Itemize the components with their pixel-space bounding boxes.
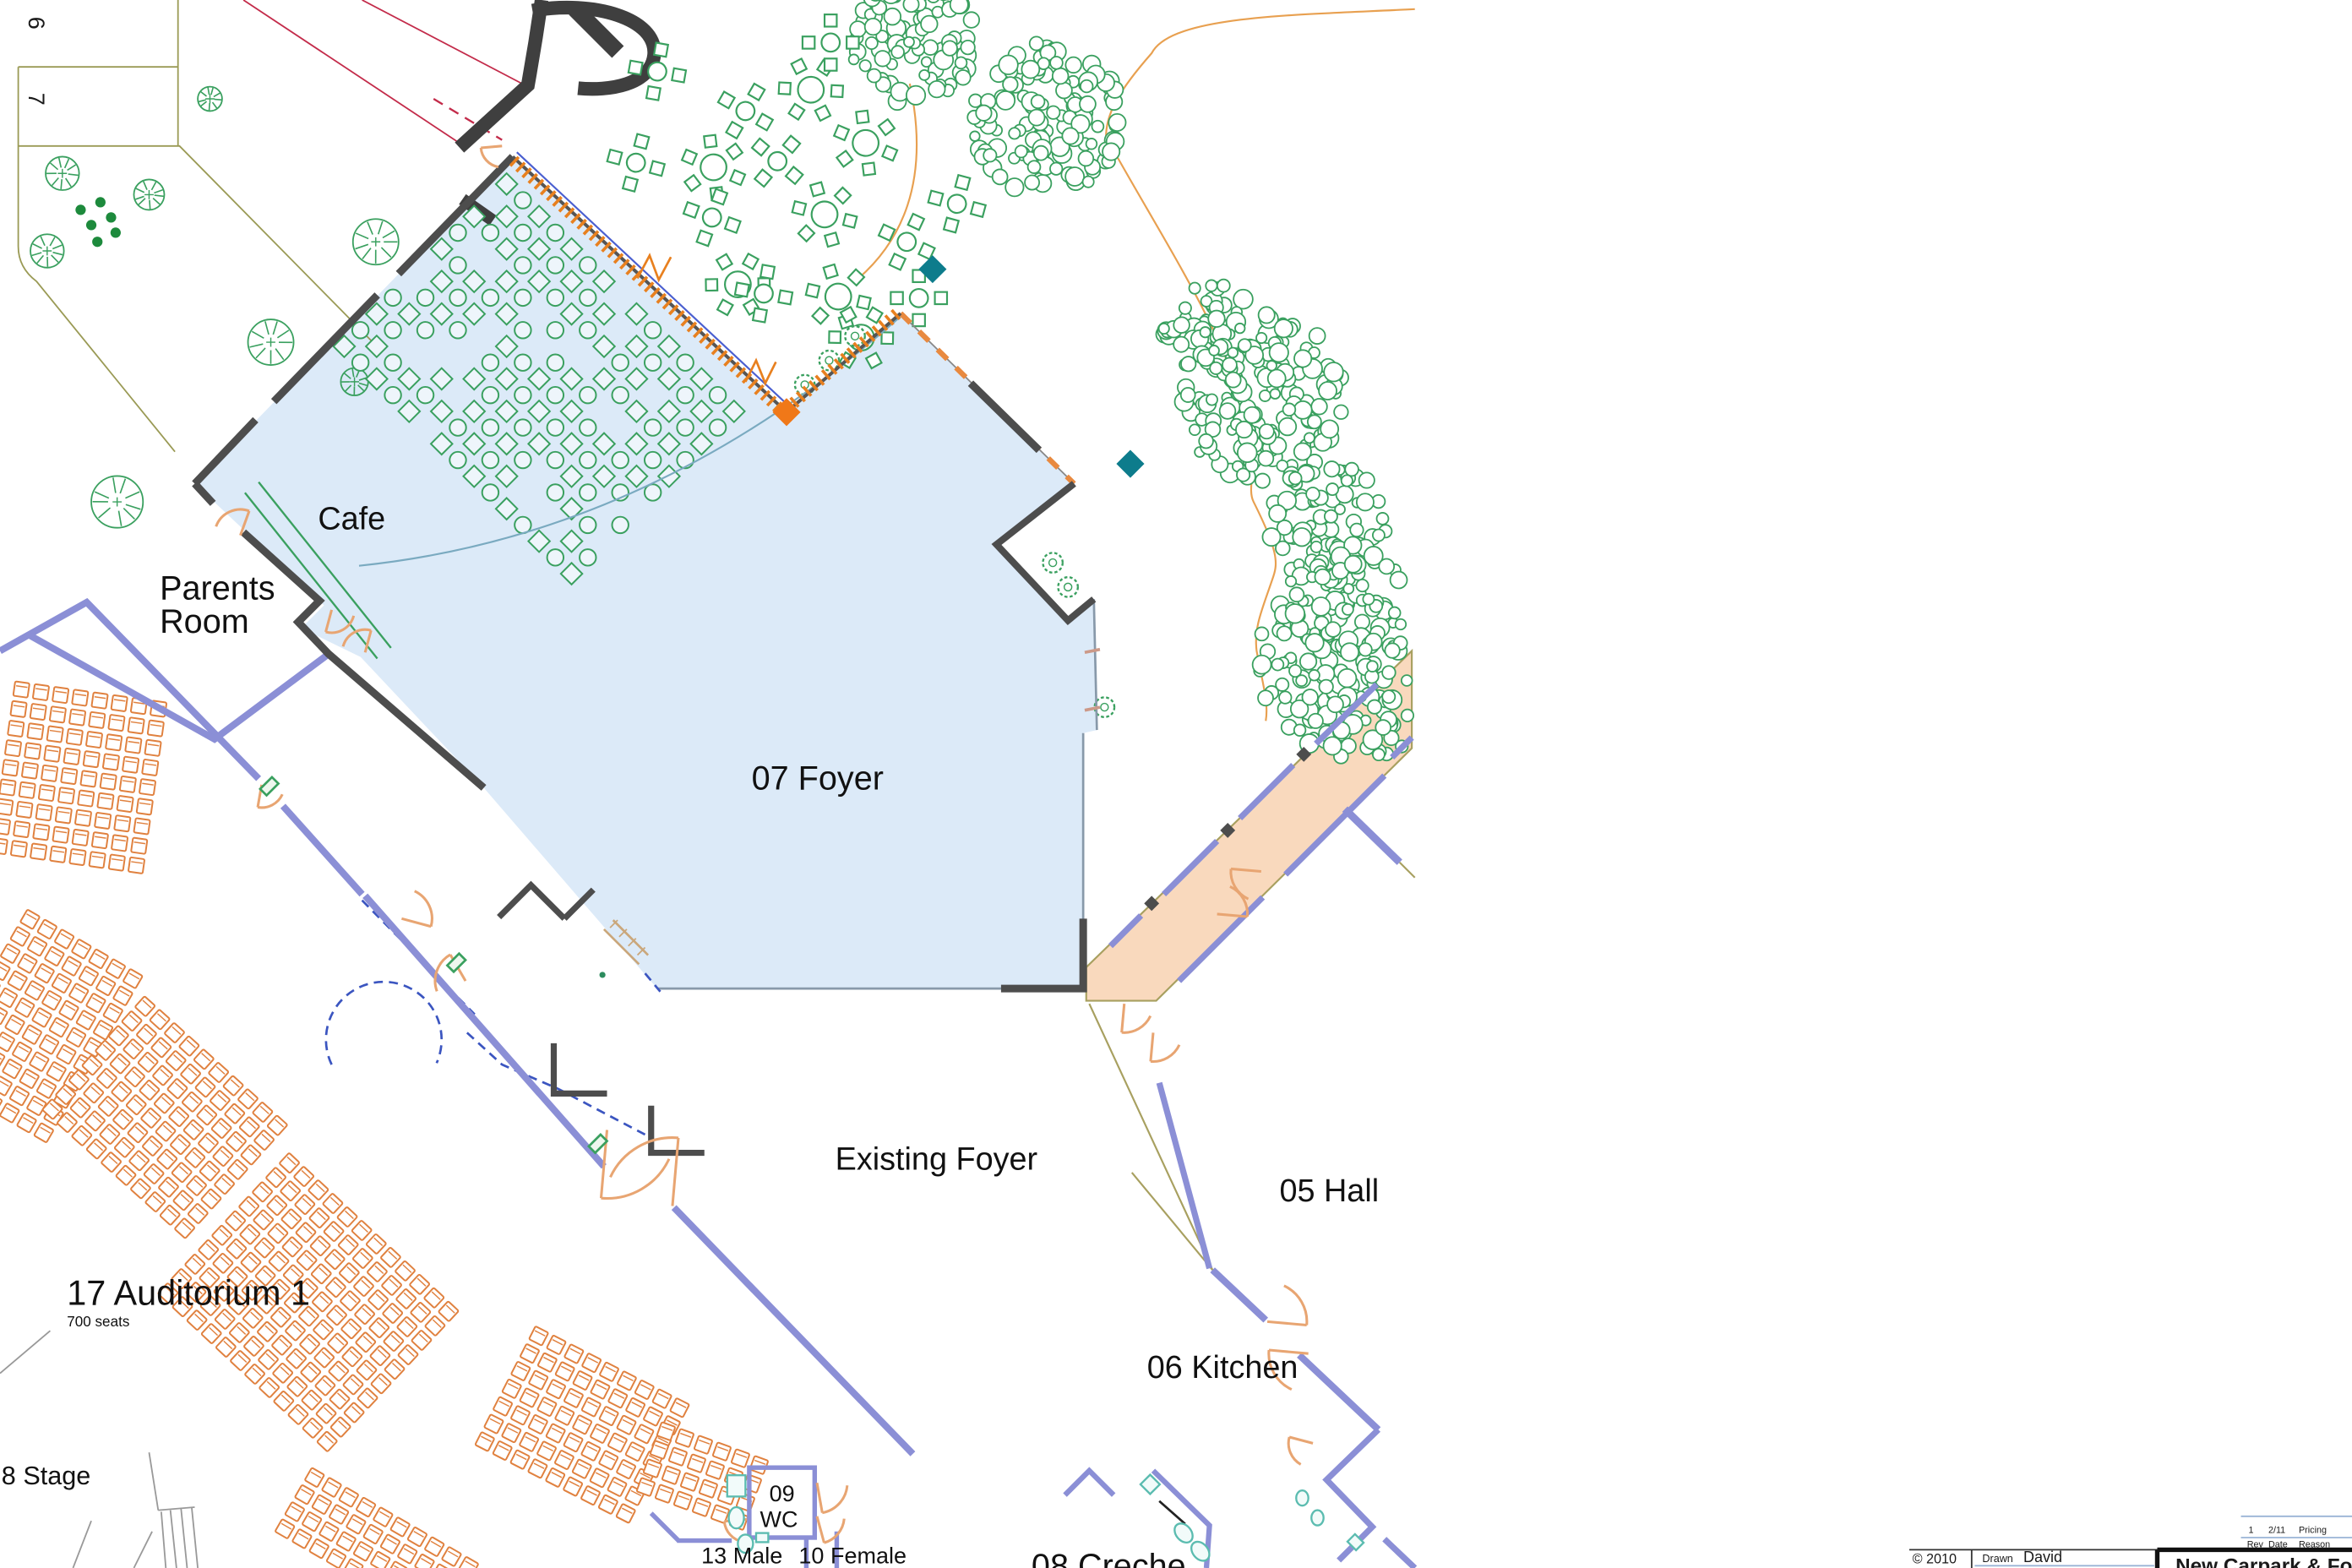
square-table <box>707 73 784 150</box>
room-label-female: 10 Female <box>798 1543 906 1568</box>
door-arc <box>1122 1016 1151 1033</box>
cafe-table-round <box>677 452 693 468</box>
cafe-table-round <box>580 290 596 306</box>
plot-number-6: 6 <box>24 17 49 30</box>
cafe-table-round <box>449 225 465 241</box>
square-table <box>624 39 689 104</box>
cafe-table-round <box>580 322 596 338</box>
cafe-table-round <box>514 290 531 306</box>
door-arc <box>610 1138 678 1178</box>
cafe-table-round <box>352 355 368 371</box>
cafe-table-round <box>514 257 531 273</box>
cafe-table-round <box>677 387 693 403</box>
square-table <box>738 122 817 201</box>
cafe-table-round <box>514 225 531 241</box>
tree <box>849 0 979 110</box>
square-table <box>602 128 671 198</box>
door-arc <box>824 1519 844 1543</box>
round-table <box>765 44 857 135</box>
cafe-table-round <box>580 517 596 533</box>
drawn-label: Drawn <box>1982 1553 2012 1565</box>
cafe-table-round <box>417 387 433 403</box>
cafe-table-round <box>449 452 465 468</box>
copyright-text: © 2010 <box>1913 1552 1957 1567</box>
cafe-table-round <box>710 419 726 435</box>
cafe-table-round <box>677 419 693 435</box>
tree <box>967 36 1125 196</box>
door-arc <box>822 1485 847 1512</box>
room-label-foyer: 07 Foyer <box>752 759 884 797</box>
room-label-parents-2: Room <box>160 603 249 640</box>
cafe-table-round <box>547 225 563 241</box>
bush <box>1043 553 1062 572</box>
cafe-table-round <box>449 257 465 273</box>
title-block: 1 2/11 Pricing Rev Date Reason © 2010 Da… <box>1909 1516 2352 1568</box>
shrub-dot <box>111 227 121 237</box>
revision-reason-value: Pricing <box>2299 1526 2327 1536</box>
cafe-table-round <box>482 419 498 435</box>
shrub-dot <box>92 237 102 247</box>
room-label-hall: 05 Hall <box>1279 1173 1379 1209</box>
tree <box>198 87 222 112</box>
plot-number-7: 7 <box>24 93 49 106</box>
room-label-male: 13 Male <box>701 1543 782 1568</box>
cafe-table-round <box>580 387 596 403</box>
room-label-cafe: Cafe <box>318 501 385 536</box>
cafe-table-round <box>482 452 498 468</box>
floor-plan-canvas: Cafe Parents Room 07 Foyer Existing Foye… <box>0 0 2352 1568</box>
revision-header-rev: Rev <box>2247 1540 2264 1550</box>
shrub-dot <box>106 212 116 222</box>
tree <box>133 179 164 210</box>
cafe-table-round <box>384 387 400 403</box>
cafe-table-round <box>547 355 563 371</box>
shrub-dots <box>75 197 121 247</box>
square-table <box>923 169 992 238</box>
room-label-existing-foyer: Existing Foyer <box>836 1141 1038 1177</box>
cafe-table-round <box>482 387 498 403</box>
drawn-value: David <box>2023 1549 2062 1565</box>
revision-rev-value: 1 <box>2249 1526 2254 1536</box>
cafe-table-round <box>645 355 661 371</box>
room-label-stage: 8 Stage <box>2 1462 90 1490</box>
cafe-table-round <box>645 419 661 435</box>
door-arc <box>415 891 433 927</box>
tree <box>30 234 64 268</box>
door-arc <box>1151 1045 1179 1062</box>
cafe-table-round <box>580 549 596 565</box>
cafe-table-round <box>547 290 563 306</box>
shrub-dot <box>75 204 85 215</box>
cafe-table-round <box>514 355 531 371</box>
tree <box>353 219 399 264</box>
shrub-dot <box>95 197 106 207</box>
cafe-table-round <box>417 290 433 306</box>
cafe-table-round <box>645 452 661 468</box>
tree <box>248 319 294 365</box>
cafe-table-round <box>449 322 465 338</box>
cafe-table-round <box>514 192 531 208</box>
tree <box>91 476 143 527</box>
cafe-table-round <box>580 257 596 273</box>
stage-steps <box>0 1331 198 1568</box>
door-arc <box>1284 1286 1307 1326</box>
cafe-table-round <box>514 419 531 435</box>
seating-block <box>0 681 166 874</box>
cafe-table-round <box>547 419 563 435</box>
cafe-table-round <box>547 549 563 565</box>
room-label-auditorium-seats: 700 seats <box>67 1314 129 1330</box>
cafe-table-round <box>514 322 531 338</box>
cafe-table-round <box>612 517 629 533</box>
room-label-kitchen: 06 Kitchen <box>1147 1350 1298 1386</box>
cafe-table-round <box>547 452 563 468</box>
project-title: New Carpark & Fore <box>2175 1554 2352 1568</box>
cafe-table-round <box>547 387 563 403</box>
tree <box>46 156 79 190</box>
door-arc <box>481 148 498 167</box>
door-arc <box>1288 1437 1300 1464</box>
cafe-table-round <box>384 290 400 306</box>
cafe-table-round <box>677 355 693 371</box>
shrub-dot <box>86 220 96 230</box>
door-arc <box>258 794 282 808</box>
cafe-table-round <box>710 387 726 403</box>
room-label-creche: 08 Creche <box>1032 1548 1186 1568</box>
room-label-wc: WC <box>760 1506 798 1532</box>
cafe-table-round <box>482 484 498 500</box>
cafe-table-round <box>352 322 368 338</box>
cafe-table-round <box>417 322 433 338</box>
door-arc <box>601 1159 668 1199</box>
cafe-table-round <box>449 290 465 306</box>
cafe-table-round <box>612 355 629 371</box>
revision-header-reason: Reason <box>2299 1540 2330 1550</box>
cafe-table-round <box>580 419 596 435</box>
cafe-table-round <box>547 484 563 500</box>
cafe-table-round <box>580 452 596 468</box>
revision-date-value: 2/11 <box>2268 1526 2285 1536</box>
cafe-table-round <box>612 387 629 403</box>
room-label-wc-number: 09 <box>770 1481 795 1506</box>
cafe-table-round <box>482 290 498 306</box>
cafe-table-round <box>547 322 563 338</box>
seating-block <box>275 1467 478 1568</box>
room-label-parents-1: Parents <box>160 569 275 607</box>
revision-header-date: Date <box>2268 1540 2288 1550</box>
cafe-table-round <box>645 322 661 338</box>
cafe-table-round <box>547 257 563 273</box>
cafe-table-round <box>482 225 498 241</box>
cafe-table-round <box>612 452 629 468</box>
cafe-table-round <box>580 484 596 500</box>
cafe-table-round <box>384 355 400 371</box>
round-table <box>829 106 901 179</box>
cafe-table-round <box>514 387 531 403</box>
cafe-table-round <box>449 419 465 435</box>
cafe-table-round <box>514 452 531 468</box>
cafe-table-round <box>384 322 400 338</box>
room-label-auditorium: 17 Auditorium 1 <box>67 1274 310 1313</box>
square-table <box>731 261 796 326</box>
cafe-table-round <box>482 355 498 371</box>
bush <box>1058 577 1077 596</box>
